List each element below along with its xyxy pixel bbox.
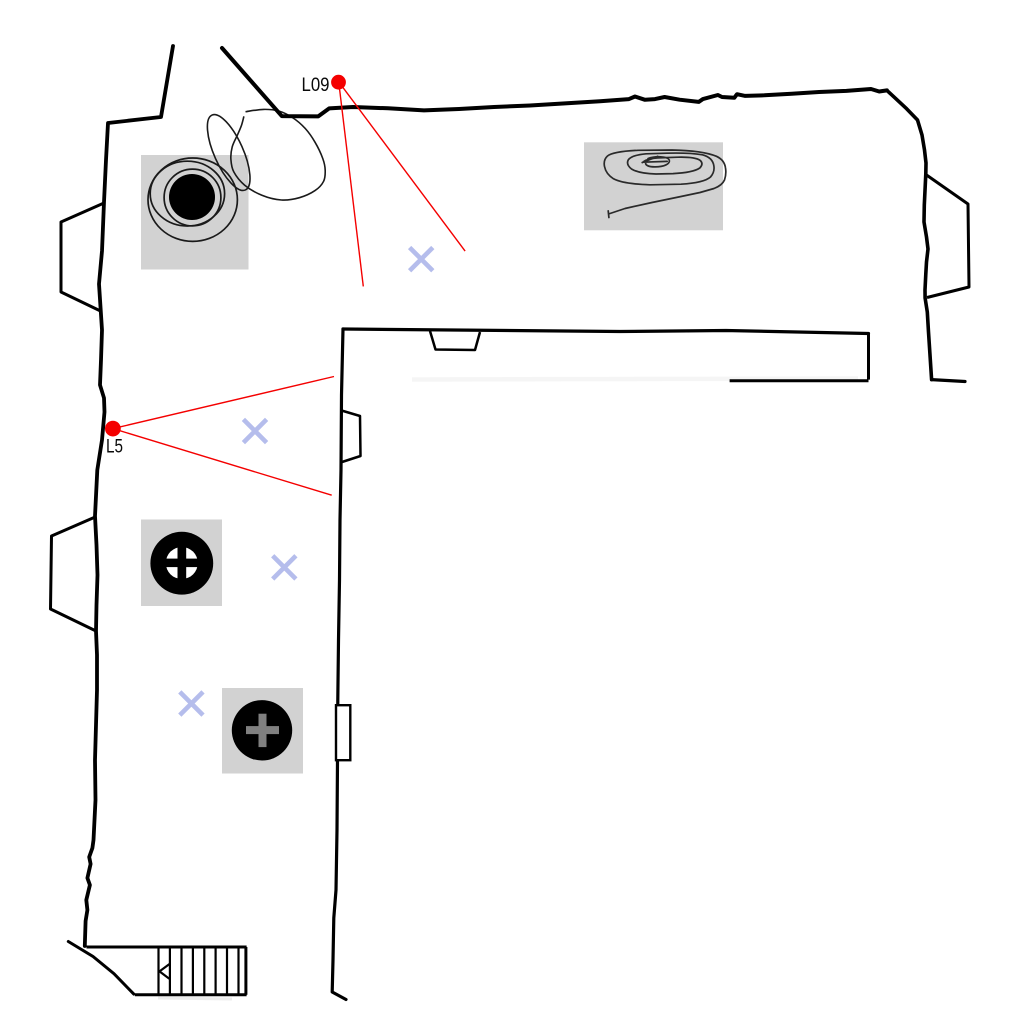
svg-text:L09: L09	[302, 75, 330, 96]
svg-text:L5: L5	[106, 437, 123, 458]
